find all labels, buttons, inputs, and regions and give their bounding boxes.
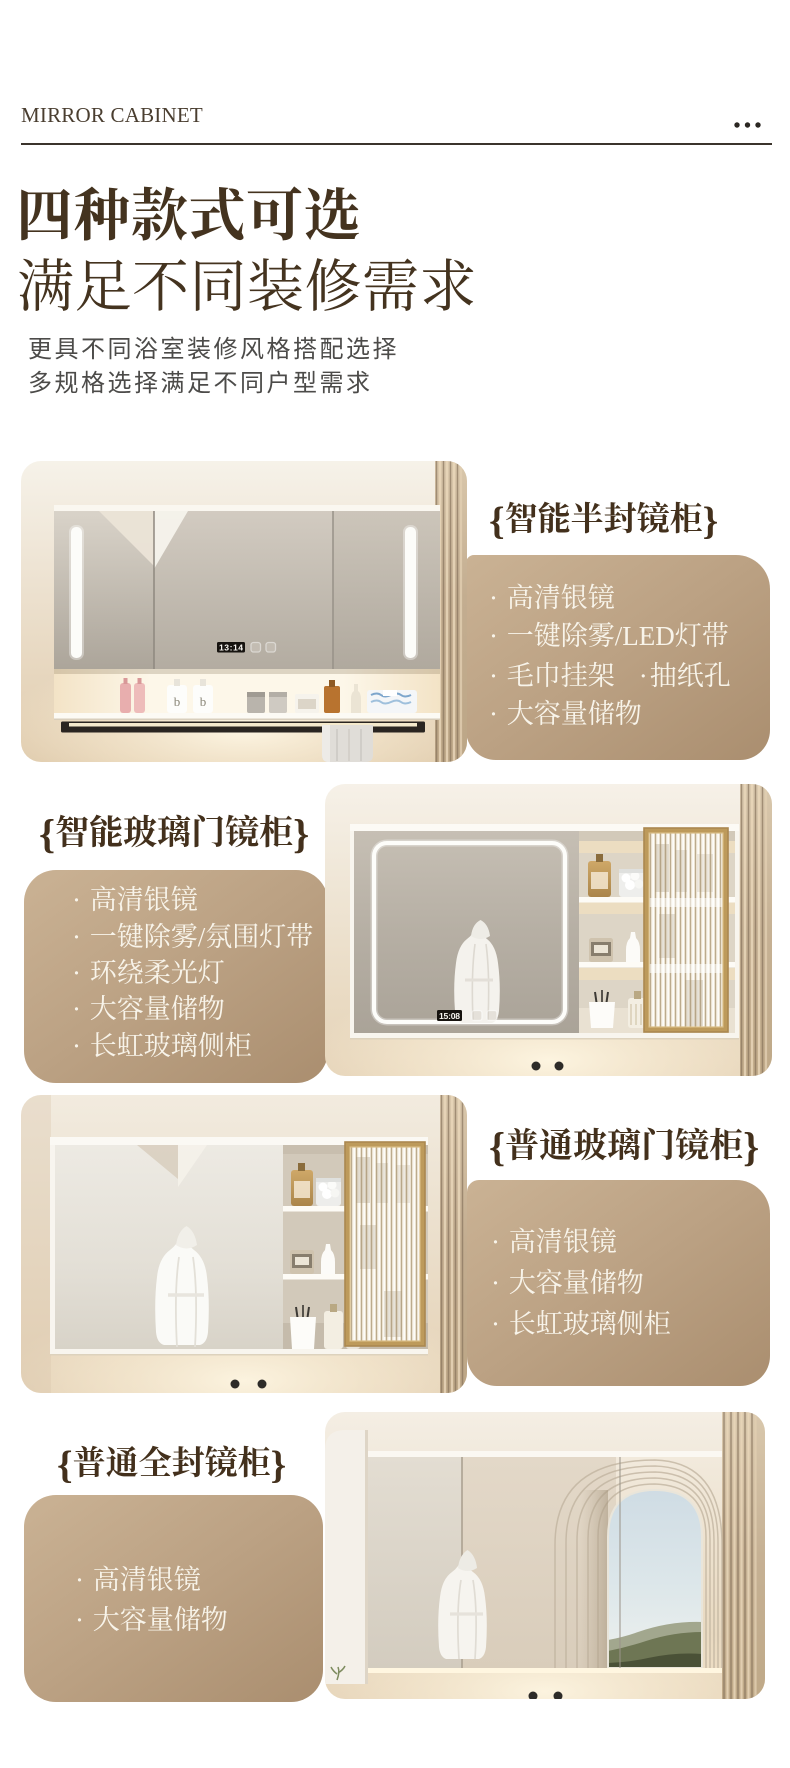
svg-text:b: b (200, 694, 207, 709)
svg-text:b: b (174, 694, 181, 709)
svg-text:15:08: 15:08 (439, 1011, 460, 1021)
svg-text:13:14: 13:14 (219, 643, 243, 653)
